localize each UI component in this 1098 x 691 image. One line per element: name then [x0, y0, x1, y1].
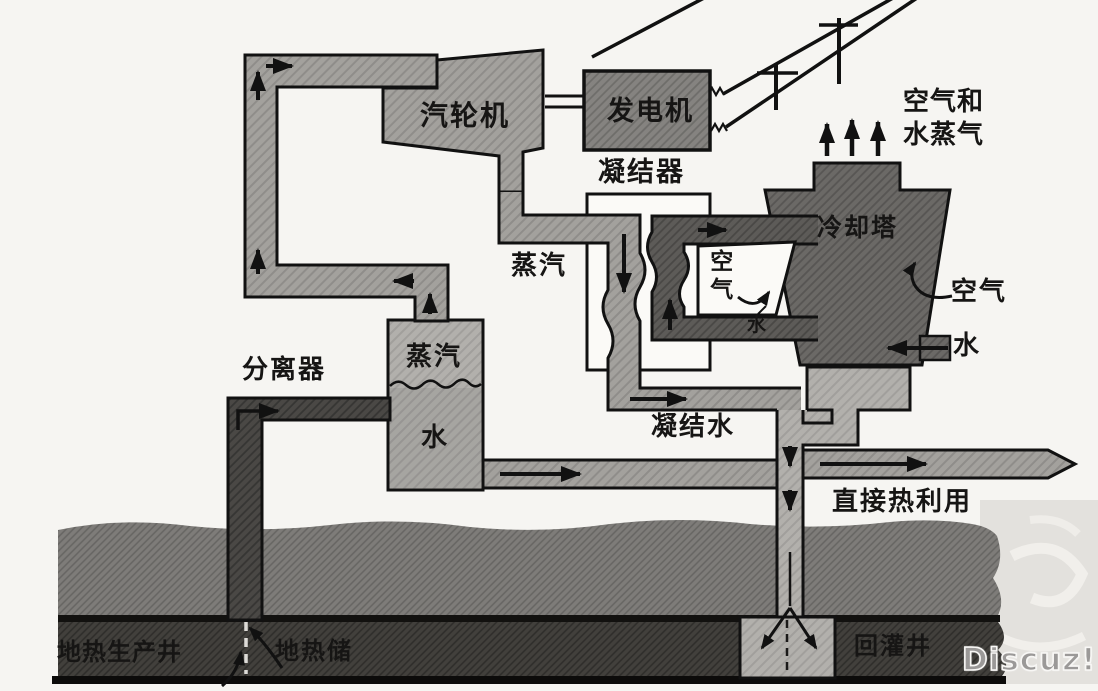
diagram-canvas [0, 0, 1098, 691]
generator-box [584, 71, 710, 150]
geothermal-power-diagram: 汽轮机 发电机 凝结器 蒸汽 冷却塔 空气和水蒸气 空气 水 空气 水 分离器 … [0, 0, 1098, 691]
ground-bottom-line [52, 676, 1006, 684]
layer-boundary-line [58, 615, 1000, 622]
reservoir-layer [58, 622, 1006, 676]
separator-box [388, 320, 483, 490]
ground-upper-layer [58, 520, 1001, 617]
